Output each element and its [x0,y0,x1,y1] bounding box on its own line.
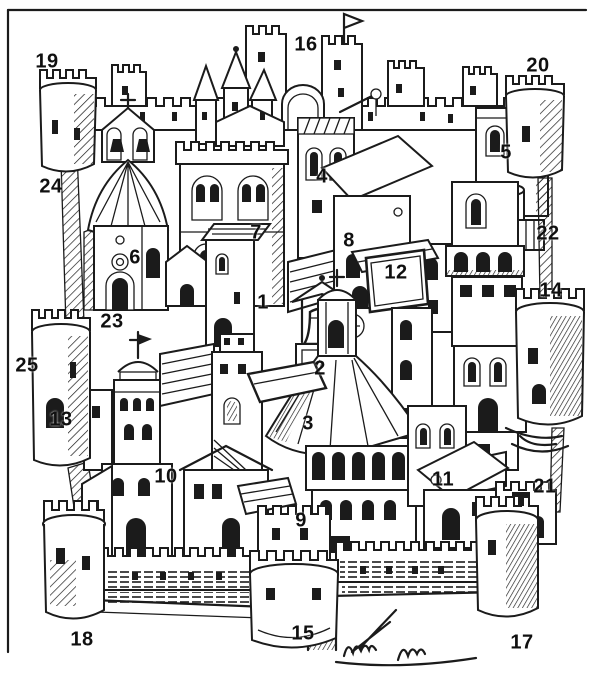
map-label-21: 21 [533,476,556,499]
map-label-1: 1 [257,292,269,315]
map-label-11: 11 [432,469,454,492]
map-label-19: 19 [35,51,58,74]
map-label-2: 2 [314,358,326,381]
map-label-18: 18 [70,629,93,652]
label-layer: 1234567891011121314151617181920212223242… [0,0,600,699]
map-label-22: 22 [536,223,559,246]
map-label-9: 9 [295,510,307,533]
map-label-4: 4 [316,166,328,189]
map-label-14: 14 [539,280,562,303]
map-label-10: 10 [154,466,177,489]
map-label-13: 13 [49,409,72,432]
woodcut-city-map: 1234567891011121314151617181920212223242… [0,0,600,699]
map-label-23: 23 [100,311,123,334]
map-label-20: 20 [526,55,549,78]
map-label-16: 16 [294,34,317,57]
map-label-3: 3 [302,413,314,436]
map-label-12: 12 [384,262,407,285]
map-label-15: 15 [291,623,314,646]
map-label-17: 17 [510,632,533,655]
map-label-6: 6 [129,247,141,270]
map-label-5: 5 [500,142,512,165]
map-label-24: 24 [39,176,62,199]
map-label-8: 8 [343,230,355,253]
map-label-25: 25 [15,355,38,378]
map-label-7: 7 [250,222,262,245]
